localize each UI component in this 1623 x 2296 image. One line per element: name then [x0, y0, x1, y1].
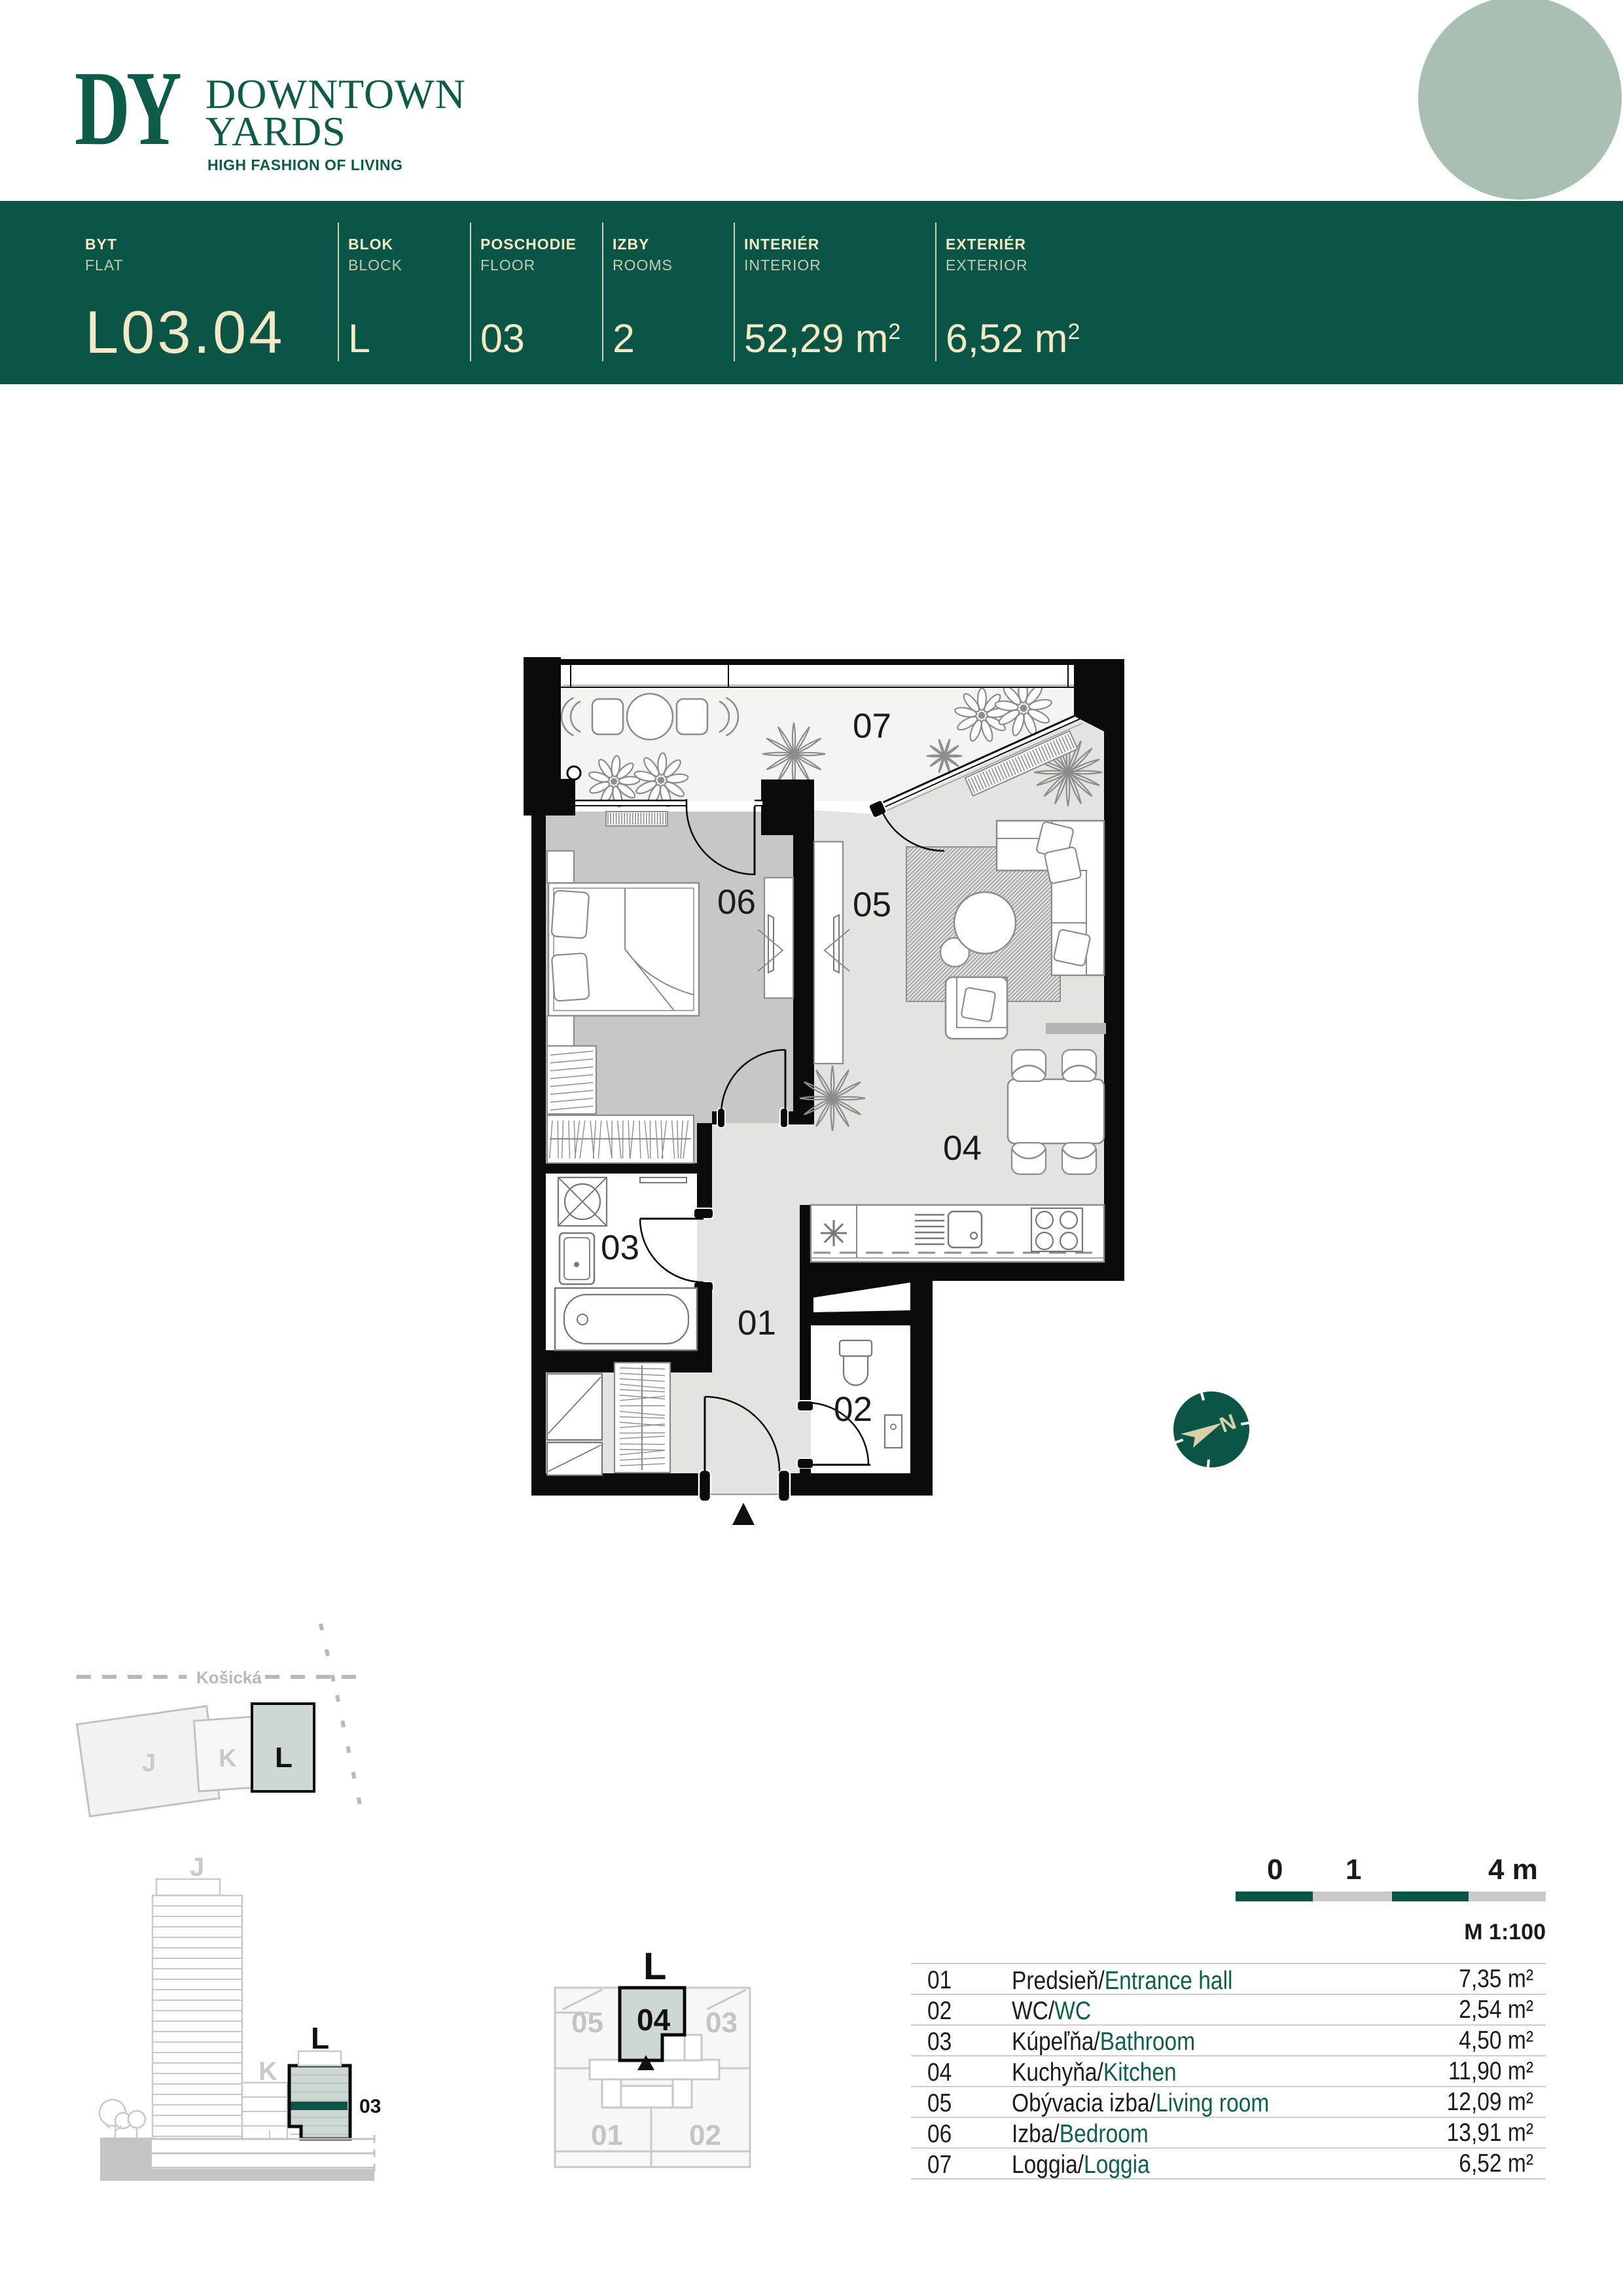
svg-text:05: 05: [571, 2007, 603, 2039]
svg-text:L: L: [275, 1742, 293, 1774]
svg-text:02: 02: [834, 1390, 872, 1429]
svg-text:04: 04: [943, 1129, 982, 1168]
svg-text:J: J: [190, 1853, 204, 1882]
svg-text:L: L: [643, 1945, 666, 1988]
svg-text:07: 07: [853, 707, 891, 745]
svg-text:02: 02: [689, 2119, 721, 2151]
svg-text:03: 03: [705, 2007, 738, 2039]
svg-text:03: 03: [601, 1229, 639, 1267]
svg-text:01: 01: [591, 2119, 623, 2151]
svg-text:04: 04: [637, 2003, 671, 2037]
svg-text:06: 06: [717, 883, 756, 922]
svg-text:03: 03: [359, 2096, 381, 2117]
svg-text:01: 01: [738, 1304, 776, 1342]
svg-text:K: K: [219, 1745, 237, 1772]
svg-text:L: L: [311, 2021, 329, 2055]
svg-text:K: K: [259, 2057, 277, 2086]
svg-text:05: 05: [853, 886, 891, 924]
svg-text:Košická: Košická: [196, 1668, 262, 1687]
svg-text:J: J: [142, 1749, 156, 1777]
